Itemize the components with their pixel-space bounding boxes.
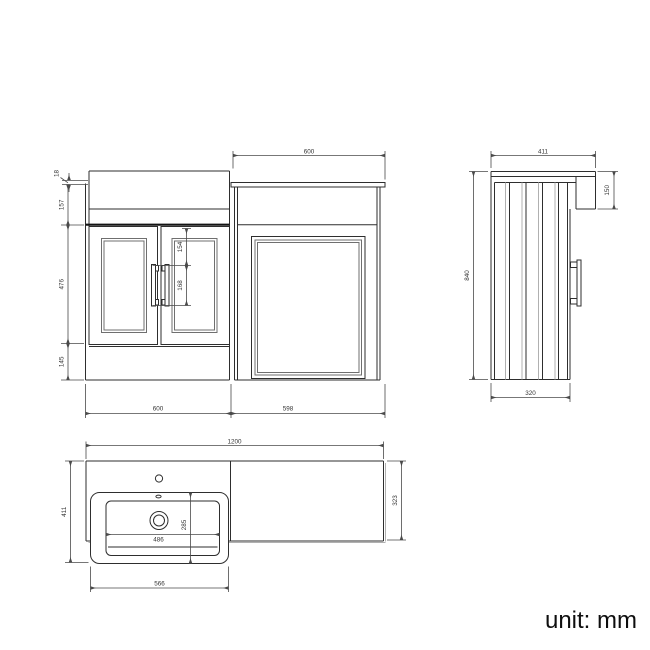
vanity-technical-drawing: 600 18 157 476 145 154 168: [0, 0, 650, 650]
dim-label-door-height: 476: [59, 278, 66, 289]
dim-label-side-overhang: 150: [604, 185, 611, 196]
dim-label-front-top-width: 600: [304, 149, 315, 156]
dim-front-bottom-widths: 600 598: [86, 384, 386, 418]
dim-label-plinth-height: 145: [59, 356, 66, 367]
left-door-panel-inner: [104, 241, 144, 330]
dim-label-upper-height: 157: [59, 199, 66, 210]
dim-label-side-height: 840: [464, 270, 471, 281]
wc-door-panel-inner: [258, 243, 360, 373]
dim-side-height: 840: [464, 172, 488, 380]
dim-side-base-depth: 320: [491, 383, 570, 402]
dim-plan-total-width: 1200: [86, 439, 384, 460]
side-handle-profile: [571, 260, 582, 306]
dim-worktop-thickness: 18: [54, 170, 89, 192]
dim-front-top-width: 600: [233, 149, 385, 180]
dim-label-side-base-depth: 320: [525, 390, 536, 397]
dim-label-bottom-right-width: 598: [283, 406, 294, 413]
dim-side-depth: 411: [491, 149, 596, 169]
wc-door-panel: [255, 240, 362, 375]
vanity-left-door: [89, 227, 158, 345]
dim-label-plan-left-depth: 411: [61, 506, 68, 517]
tap-hole: [155, 475, 162, 482]
right-door-handle: [162, 265, 169, 307]
side-panel-grooves-light: [506, 183, 556, 380]
dim-label-worktop-thickness: 18: [54, 170, 61, 178]
dim-label-plan-right-depth: 323: [392, 495, 399, 506]
basin-outer: [91, 493, 229, 564]
unit-note: unit: mm: [545, 607, 637, 635]
side-panel-grooves: [510, 183, 559, 380]
dim-label-side-depth: 411: [538, 149, 549, 156]
dim-label-handle-offset: 154: [177, 241, 184, 252]
dim-label-bottom-left-width: 600: [153, 406, 164, 413]
technical-drawing-page: 600 18 157 476 145 154 168: [0, 0, 650, 650]
dim-basin-outer-width: 566: [91, 567, 229, 593]
vanity-right-door: [161, 227, 230, 345]
front-elevation: 600 18 157 476 145 154 168: [54, 149, 386, 419]
dim-label-plan-total-width: 1200: [227, 439, 242, 446]
dim-label-basin-outer-width: 566: [154, 581, 165, 588]
dim-front-height-stack: 157 476 145: [59, 185, 85, 381]
dim-side-overhang: 150: [598, 172, 619, 210]
dim-plan-right-depth: 323: [387, 461, 406, 540]
plan-view: 1200 411 323 486 285 566: [61, 439, 406, 593]
side-view: 411 150 840 320: [464, 149, 618, 403]
left-door-panel: [102, 239, 147, 333]
dim-label-basin-depth: 285: [181, 519, 188, 530]
dim-label-basin-inner-width: 486: [153, 537, 164, 544]
dim-label-handle-span: 168: [177, 280, 184, 291]
wc-door: [252, 237, 366, 379]
dim-plan-left-depth: 411: [61, 461, 89, 563]
